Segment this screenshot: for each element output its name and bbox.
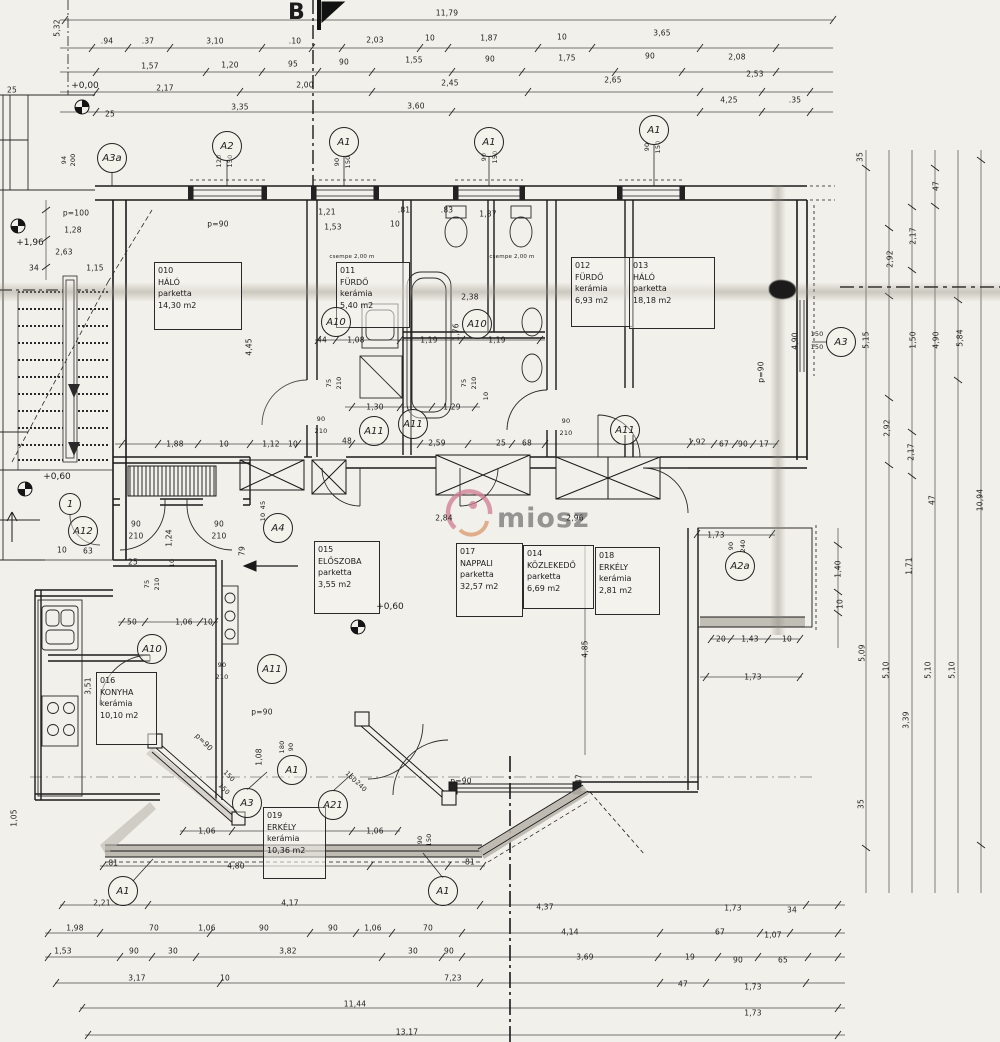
dim-label: 90 (287, 743, 295, 752)
room-area: 10,10 m2 (100, 710, 153, 722)
section-label: B (288, 0, 305, 25)
dim-label: 4,25 (720, 96, 738, 105)
dim-label: 90 (333, 158, 341, 167)
dim-label: p=90 (757, 361, 766, 382)
level-value: +0,00 (71, 81, 99, 91)
room-name: ERKÉLY (599, 562, 656, 574)
room-area: 2,81 m2 (599, 585, 656, 597)
dim-label: 2,17 (156, 84, 174, 93)
fold-shadow-blob (769, 280, 796, 299)
dim-label: 1,57 (141, 62, 159, 71)
dim-label: 34 (29, 264, 39, 273)
dim-label: .83 (441, 206, 454, 215)
room-name: NAPPALI (460, 558, 519, 570)
level-benchmark-icon (351, 620, 366, 635)
stairs (12, 210, 152, 560)
dim-label: 210 (215, 673, 228, 681)
room-area: 14,30 m2 (158, 300, 238, 312)
dim-label: 1,12 (262, 440, 280, 449)
room-number: 019 (267, 810, 322, 822)
dim-label: 75 (460, 379, 468, 388)
dim-label: 1,87 (479, 210, 497, 219)
dim-label: 1,40 (834, 560, 843, 578)
dim-label: 4,17 (281, 899, 299, 908)
dim-label: 2,08 (728, 53, 746, 62)
dim-label: 150 (425, 833, 433, 846)
dim-label: 3,69 (576, 953, 594, 962)
north-arrow (7, 512, 17, 542)
dim-label: 1,73 (744, 673, 762, 682)
reference-marker: A1 (329, 127, 359, 157)
dim-label: 90 (416, 836, 424, 845)
room-label-018: 018ERKÉLYkerámia2,81 m2 (595, 547, 660, 615)
dim-label: 5,10 (948, 661, 957, 679)
dim-label: 1,08 (255, 748, 264, 766)
dim-label: 34 (787, 906, 797, 915)
dim-label: 4,37 (536, 903, 554, 912)
room-area: 6,93 m2 (575, 295, 629, 307)
room-number: 012 (575, 260, 629, 272)
dim-label: 3,35 (231, 103, 249, 112)
dim-label: 70 (423, 924, 433, 933)
dim-label: 2,21 (93, 899, 111, 908)
dim-label: 90 (131, 520, 141, 529)
dim-label: 47 (928, 495, 937, 505)
dim-label: 48 (342, 437, 352, 446)
dim-label: 81 (465, 858, 475, 867)
dim-label: csempe 2,00 m (489, 254, 534, 260)
room-name: HÁLÓ (158, 277, 238, 289)
dim-label: 210 (153, 577, 161, 590)
dim-label: 1,53 (324, 223, 342, 232)
room-name: FÜRDŐ (575, 272, 629, 284)
dim-label: 10 (220, 974, 230, 983)
shaft-boxes (128, 455, 660, 499)
dim-label: 2,92 (886, 250, 895, 268)
dim-label: 1,87 (480, 34, 498, 43)
dim-label: 7,23 (444, 974, 462, 983)
dim-label: 10,94 (976, 489, 985, 511)
dim-label: 25 (128, 558, 138, 567)
dim-label: 95 (288, 60, 298, 69)
dim-label: p=100 (63, 209, 89, 218)
dim-label: 3,65 (653, 29, 671, 38)
dim-label: 44 (317, 336, 327, 345)
level-value: +0,60 (43, 472, 71, 482)
reference-marker: A1 (474, 127, 504, 157)
dim-label: 1,73 (707, 531, 725, 540)
room-material: kerámia (599, 573, 656, 585)
dim-label: 2,00 (296, 81, 314, 90)
dim-label: 4,45 (245, 338, 254, 356)
reference-marker: A11 (610, 415, 640, 445)
dim-label: 10 (57, 546, 67, 555)
entrance-arrow (244, 561, 298, 571)
dim-label: 5,10 (924, 661, 933, 679)
room-label-012: 012FÜRDŐkerámia6,93 m2 (571, 257, 633, 327)
dim-label: 1,28 (64, 226, 82, 235)
dim-label: 10 (203, 618, 213, 627)
dim-label: 1,06 (198, 924, 216, 933)
dim-label: 19 (685, 953, 695, 962)
room-number: 010 (158, 265, 238, 277)
dim-label: 30 (408, 947, 418, 956)
room-number: 011 (340, 265, 406, 277)
dim-label: 3,51 (84, 677, 93, 695)
dim-label: 10 (782, 635, 792, 644)
dim-label: 1,29 (443, 403, 461, 412)
dim-label: 1,08 (347, 336, 365, 345)
dim-label: 10 (168, 559, 176, 568)
dim-label: 10 (482, 392, 490, 401)
reference-marker: A1 (277, 755, 307, 785)
dim-label: 35 (857, 799, 866, 809)
reference-marker: A4 (263, 513, 293, 543)
dim-label: 30 (168, 947, 178, 956)
dim-label: 10 (219, 440, 229, 449)
room-area: 5,40 m2 (340, 300, 406, 312)
dim-label: 90 (214, 520, 224, 529)
dim-label: 1,06 (366, 827, 384, 836)
dim-label: csempe 2,00 m (329, 254, 374, 260)
level-value: +1,96 (16, 238, 44, 248)
room-area: 18,18 m2 (633, 295, 711, 307)
dim-label: 4,90 (791, 332, 800, 350)
dim-label: 150 (344, 155, 352, 168)
dim-label: 2,38 (461, 293, 479, 302)
dim-label: 3,60 (407, 102, 425, 111)
room-number: 015 (318, 544, 376, 556)
dim-label: 2,03 (366, 36, 384, 45)
reference-marker: A3 (826, 327, 856, 357)
dim-label: 11,79 (436, 9, 458, 18)
room-material: kerámia (340, 288, 406, 300)
reference-marker: A11 (359, 416, 389, 446)
level-benchmark-icon (75, 100, 90, 115)
level-benchmark-icon (11, 219, 26, 234)
dim-label: 2,53 (746, 70, 764, 79)
dim-label: 75 (143, 580, 151, 589)
dim-label: 90 (444, 947, 454, 956)
dim-label: 150 (810, 330, 823, 338)
dim-label: 150 (810, 343, 823, 351)
reference-marker: A10 (462, 309, 492, 339)
room-label-010: 010HÁLÓparketta14,30 m2 (154, 262, 242, 330)
dim-label: 1,06 (198, 827, 216, 836)
dim-label: 10 (425, 34, 435, 43)
dim-label: 79 (238, 546, 247, 556)
dim-label: 75 (325, 379, 333, 388)
room-label-014: 014KÖZLEKEDŐparketta6,69 m2 (523, 545, 594, 609)
room-number: 014 (527, 548, 590, 560)
reference-marker: A1 (108, 876, 138, 906)
section-flag (319, 0, 344, 30)
dim-label: 13,17 (396, 1028, 418, 1037)
dim-label: 1,73 (724, 904, 742, 913)
dim-label: 1,06 (175, 618, 193, 627)
dim-label: 47 (932, 181, 941, 191)
dim-label: 2,63 (55, 248, 73, 257)
room-name: KÖZLEKEDŐ (527, 560, 590, 572)
dim-label: p=90 (251, 708, 272, 717)
dim-label: 180 (278, 740, 286, 753)
dim-label: 2,59 (428, 439, 446, 448)
dim-label: 90 (727, 542, 735, 551)
room-area: 3,55 m2 (318, 579, 376, 591)
reference-marker: A2a (725, 551, 755, 581)
dim-label: 210 (129, 532, 144, 541)
dim-label: 11,44 (344, 1000, 366, 1009)
reference-marker: A2 (212, 131, 242, 161)
level-value: +0,60 (376, 602, 404, 612)
dim-label: 90 (485, 55, 495, 64)
room-name: HÁLÓ (633, 272, 711, 284)
neighbor-walls (0, 95, 95, 560)
vertical-fold-crease (770, 185, 786, 635)
dim-label: 90 (129, 947, 139, 956)
dim-label: 2,17 (909, 227, 918, 245)
room-material: kerámia (267, 833, 322, 845)
dim-label: .81 (106, 859, 119, 868)
dim-label: 68 (522, 439, 532, 448)
reference-marker: A11 (257, 654, 287, 684)
dim-label: 2,65 (604, 76, 622, 85)
room-material: parketta (318, 567, 376, 579)
dim-label: 5,32 (53, 19, 62, 37)
dim-label: 10 (390, 220, 400, 229)
dim-label: .37 (142, 37, 155, 46)
room-area: 10,36 m2 (267, 845, 322, 857)
room-material: kerámia (100, 698, 153, 710)
dim-label: 4,14 (561, 928, 579, 937)
room-material: parketta (633, 283, 711, 295)
dim-label: 90 (562, 417, 571, 425)
dim-label: 45 (259, 501, 267, 510)
dim-label: 47 (575, 774, 584, 784)
room-material: parketta (527, 571, 590, 583)
room-name: FÜRDŐ (340, 277, 406, 289)
dim-label: 5,09 (858, 644, 867, 662)
dim-label: 1,73 (744, 983, 762, 992)
dim-label: .81 (398, 206, 411, 215)
floorplan-sheet: B miosz 010HÁLÓparketta14,30 m2011FÜRDŐk… (0, 0, 1000, 1042)
dim-label: 2,92 (883, 419, 892, 437)
room-material: kerámia (575, 283, 629, 295)
dim-label: 1,55 (405, 56, 423, 65)
room-label-019: 019ERKÉLYkerámia10,36 m2 (263, 807, 326, 879)
dim-label: 4,85 (581, 640, 590, 658)
room-label-017: 017NAPPALIparketta32,57 m2 (456, 543, 523, 617)
dim-label: p=90 (207, 220, 228, 229)
dim-label: 1,30 (366, 403, 384, 412)
dim-label: 2,84 (435, 514, 453, 523)
dim-label: 210 (212, 532, 227, 541)
dim-label: 10 (836, 599, 845, 609)
dim-label: 10 (288, 440, 298, 449)
dim-label: 3,17 (128, 974, 146, 983)
dim-label: 5,10 (882, 661, 891, 679)
bay-and-balcony (100, 712, 645, 862)
dim-label: .94 (101, 37, 114, 46)
reference-marker: A3 (232, 788, 262, 818)
dim-label: 3,82 (279, 947, 297, 956)
dim-label: 2,96 (566, 514, 584, 523)
dim-label: 90 (645, 52, 655, 61)
dim-label: 1,20 (221, 61, 239, 70)
room-name: ELŐSZOBA (318, 556, 376, 568)
dim-label: 1,15 (86, 264, 104, 273)
room-number: 013 (633, 260, 711, 272)
reference-marker: A11 (398, 409, 428, 439)
reference-marker: 1 (59, 493, 81, 515)
dim-label: 2,17 (907, 443, 916, 461)
room-number: 018 (599, 550, 656, 562)
dim-label: 25 (496, 439, 506, 448)
room-material: parketta (158, 288, 238, 300)
room-number: 016 (100, 675, 153, 687)
dim-label: 3,10 (206, 37, 224, 46)
reference-marker: A10 (137, 634, 167, 664)
dim-label: 210 (314, 427, 327, 435)
dim-label: 200 (69, 153, 77, 166)
reference-marker: A10 (321, 307, 351, 337)
exterior-walls (95, 180, 835, 560)
dim-label: 70 (149, 924, 159, 933)
dim-label: 65 (778, 956, 788, 965)
room-label-013: 013HÁLÓparketta18,18 m2 (629, 257, 715, 329)
dim-label: 1,19 (420, 336, 438, 345)
dim-label: p=90 (450, 777, 471, 786)
dim-label: 20 (716, 635, 726, 644)
dim-label: 35 (856, 152, 865, 162)
dim-label: 1,05 (10, 809, 19, 827)
dim-label: 5,84 (956, 329, 965, 347)
dim-label: 1,50 (909, 331, 918, 349)
dim-label: 2,45 (441, 79, 459, 88)
dim-label: 1,71 (905, 557, 914, 575)
dim-label: 90 (218, 661, 227, 669)
dim-label: 90 (733, 956, 743, 965)
dim-label: 25 (7, 86, 17, 95)
dim-label: 63 (83, 547, 93, 556)
watermark-logo (448, 491, 490, 534)
dim-label: .10 (289, 37, 302, 46)
reference-marker: A21 (318, 790, 348, 820)
dim-label: 1,43 (741, 635, 759, 644)
dim-label: 4,80 (227, 862, 245, 871)
room-name: KONYHA (100, 687, 153, 699)
level-benchmark-icon (18, 482, 33, 497)
marker-leaders (112, 144, 827, 881)
room-label-016: 016KONYHAkerámia10,10 m2 (96, 672, 157, 745)
dim-label: 1,53 (54, 947, 72, 956)
dim-label: 4,90 (932, 331, 941, 349)
dim-label: 50 (127, 618, 137, 627)
dim-label: 17 (759, 440, 769, 449)
dim-label: 1,76 (452, 323, 461, 341)
dim-label: 67 (715, 928, 725, 937)
room-label-015: 015ELŐSZOBAparketta3,55 m2 (314, 541, 380, 614)
dim-label: 3,39 (902, 711, 911, 729)
dim-label: 1,88 (166, 440, 184, 449)
dim-label: 94 (60, 156, 68, 165)
dim-label: 210 (559, 429, 572, 437)
reference-marker: A3a (97, 143, 127, 173)
reference-marker: A1 (428, 876, 458, 906)
dim-label: .35 (789, 96, 802, 105)
room-area: 6,69 m2 (527, 583, 590, 595)
dim-label: 1,21 (318, 208, 336, 217)
horizontal-fold-crease (0, 282, 1000, 302)
dim-label: 210 (335, 376, 343, 389)
reference-marker: A12 (68, 516, 98, 546)
dim-label: 1,73 (744, 1009, 762, 1018)
room-number: 017 (460, 546, 519, 558)
dim-label: 10 (557, 33, 567, 42)
dim-label: 1,98 (66, 924, 84, 933)
wall-posts (188, 186, 685, 200)
dim-label: 90 (339, 58, 349, 67)
dim-label: 1,75 (558, 54, 576, 63)
reference-marker: A1 (639, 115, 669, 145)
dim-label: 1,07 (764, 931, 782, 940)
room-name: ERKÉLY (267, 822, 322, 834)
dim-label: 90 (328, 924, 338, 933)
dim-label: 90 (738, 440, 748, 449)
dim-label: 67 (719, 440, 729, 449)
balcony-018 (698, 525, 816, 632)
dim-label: 1,19 (488, 336, 506, 345)
room-area: 32,57 m2 (460, 581, 519, 593)
dim-label: 47 (678, 980, 688, 989)
dim-label: 25 (105, 110, 115, 119)
dim-label: 1,24 (165, 529, 174, 547)
dim-label: 90 (259, 924, 269, 933)
dim-label: 210 (470, 376, 478, 389)
dim-label: 5,15 (862, 331, 871, 349)
dim-label: 1,92 (688, 438, 706, 447)
room-material: parketta (460, 569, 519, 581)
dim-label: 1,06 (364, 924, 382, 933)
dim-label: 90 (317, 415, 326, 423)
